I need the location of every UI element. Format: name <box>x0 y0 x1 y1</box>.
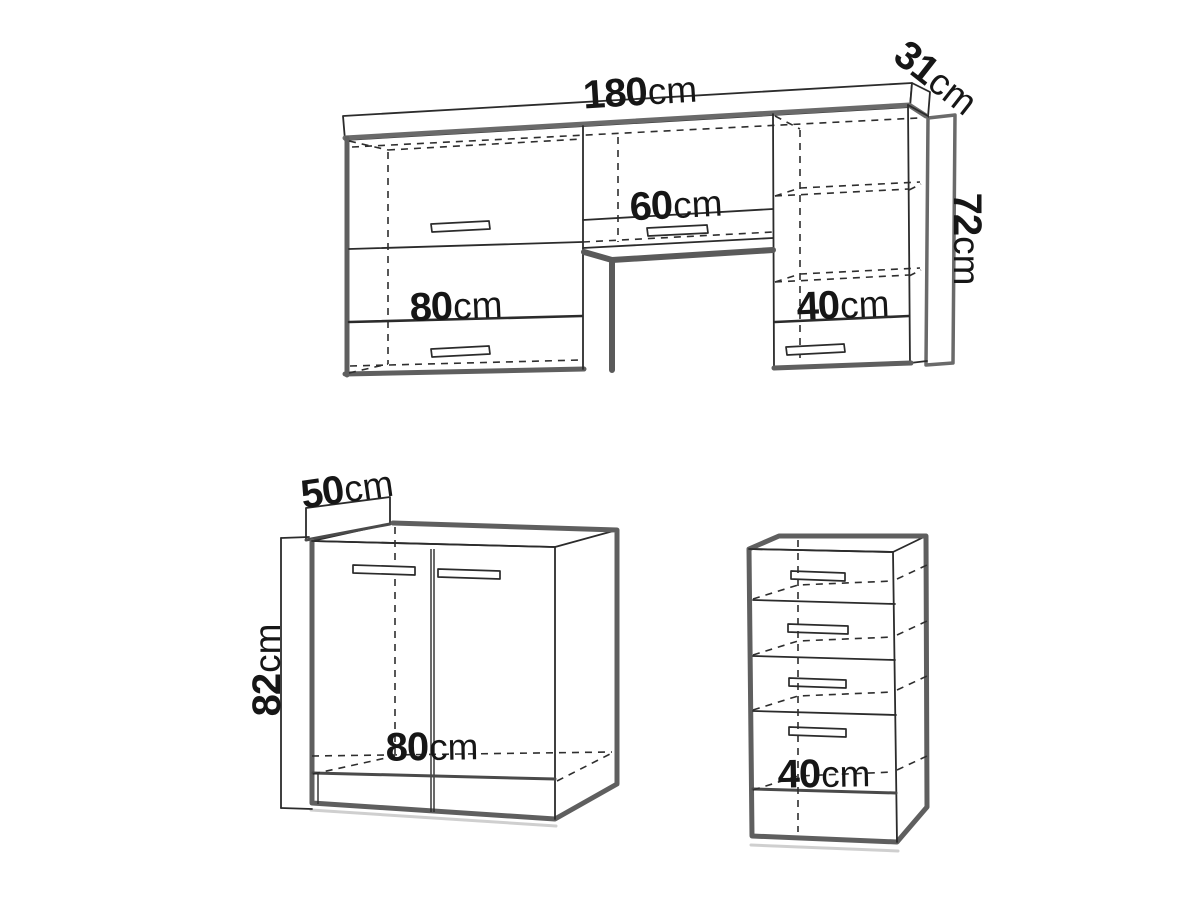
furniture-line-drawing <box>0 0 1200 900</box>
dimension-label-drawer-unit-width: 40cm <box>777 753 871 795</box>
dimension-label-right-pedestal-width: 40cm <box>796 283 890 327</box>
dimension-label-left-pedestal-width: 80cm <box>409 284 503 328</box>
dimension-label-desk-width: 180cm <box>582 69 698 116</box>
door-handle <box>438 569 500 579</box>
door-handle <box>353 565 415 575</box>
drawer-unit-drawing <box>749 536 927 851</box>
dimension-label-cabinet-height: 82cm <box>247 624 287 717</box>
base-cabinet-drawing <box>281 497 617 826</box>
dimension-label-desk-height: 72cm <box>947 193 987 286</box>
dimension-label-desk-middle-width: 60cm <box>629 183 724 228</box>
dimension-label-cabinet-width: 80cm <box>385 726 479 768</box>
desk-drawing <box>343 83 955 375</box>
diagram-canvas: 180cm 31cm 72cm 60cm 80cm 40cm 50cm 82cm… <box>0 0 1200 900</box>
